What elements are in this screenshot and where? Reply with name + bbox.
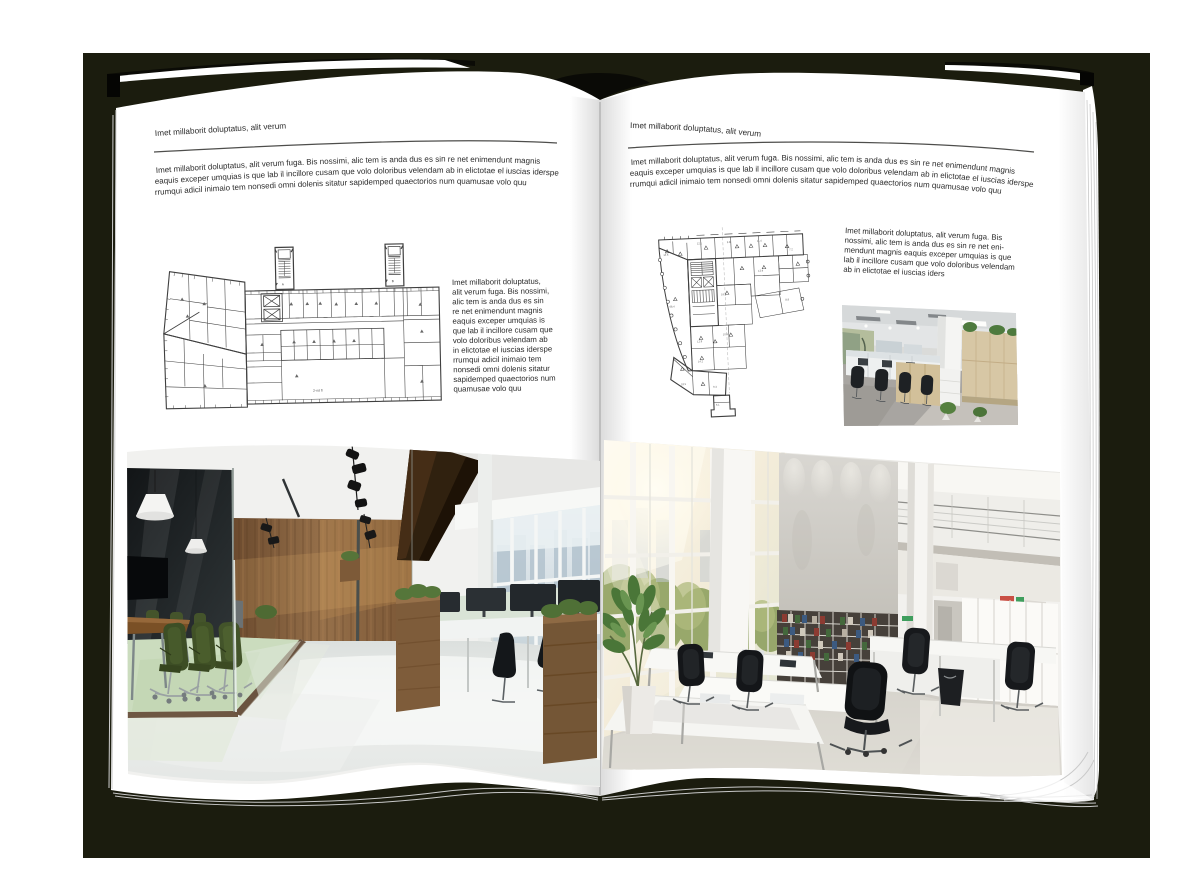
svg-text:rrumqui adicil inimaio tem: rrumqui adicil inimaio tem [453, 354, 542, 364]
svg-text:re net enimendunt magnis: re net enimendunt magnis [452, 306, 542, 316]
svg-text:volo doloribus velendam ab: volo doloribus velendam ab [453, 335, 549, 345]
svg-text:nonsedi omni dolenis sitatur: nonsedi omni dolenis sitatur [453, 364, 550, 374]
svg-text:18.5: 18.5 [681, 382, 687, 386]
svg-text:12.8: 12.8 [697, 339, 703, 343]
svg-text:Imet millaborit doluptatus,: Imet millaborit doluptatus, [452, 277, 541, 287]
svg-text:14.6: 14.6 [663, 253, 669, 257]
svg-text:2-nd fl: 2-nd fl [313, 389, 323, 393]
svg-text:B: B [392, 279, 394, 283]
svg-text:10.6: 10.6 [723, 332, 729, 336]
svg-text:quamusae volo quu: quamusae volo quu [453, 384, 521, 394]
svg-text:alit verum fuga. Bis nossimi,: alit verum fuga. Bis nossimi, [452, 286, 549, 296]
svg-text:que lab il incillore cusam que: que lab il incillore cusam que [453, 325, 553, 335]
svg-text:in elictotae el iuscias idersp: in elictotae el iuscias iderspe [453, 345, 552, 355]
svg-text:68.4: 68.4 [669, 304, 675, 308]
svg-text:14.2: 14.2 [698, 359, 704, 363]
svg-text:sapidemped quaectorios num: sapidemped quaectorios num [453, 374, 555, 384]
svg-text:alic tem is anda dus es sin: alic tem is anda dus es sin [452, 296, 544, 306]
svg-text:A: A [282, 282, 284, 286]
svg-text:16.2: 16.2 [721, 292, 727, 296]
svg-text:12.1: 12.1 [697, 241, 703, 245]
svg-text:11.4: 11.4 [757, 239, 763, 243]
svg-text:13.9: 13.9 [758, 268, 764, 272]
svg-text:eaquis exceper umquias is: eaquis exceper umquias is [452, 316, 545, 326]
